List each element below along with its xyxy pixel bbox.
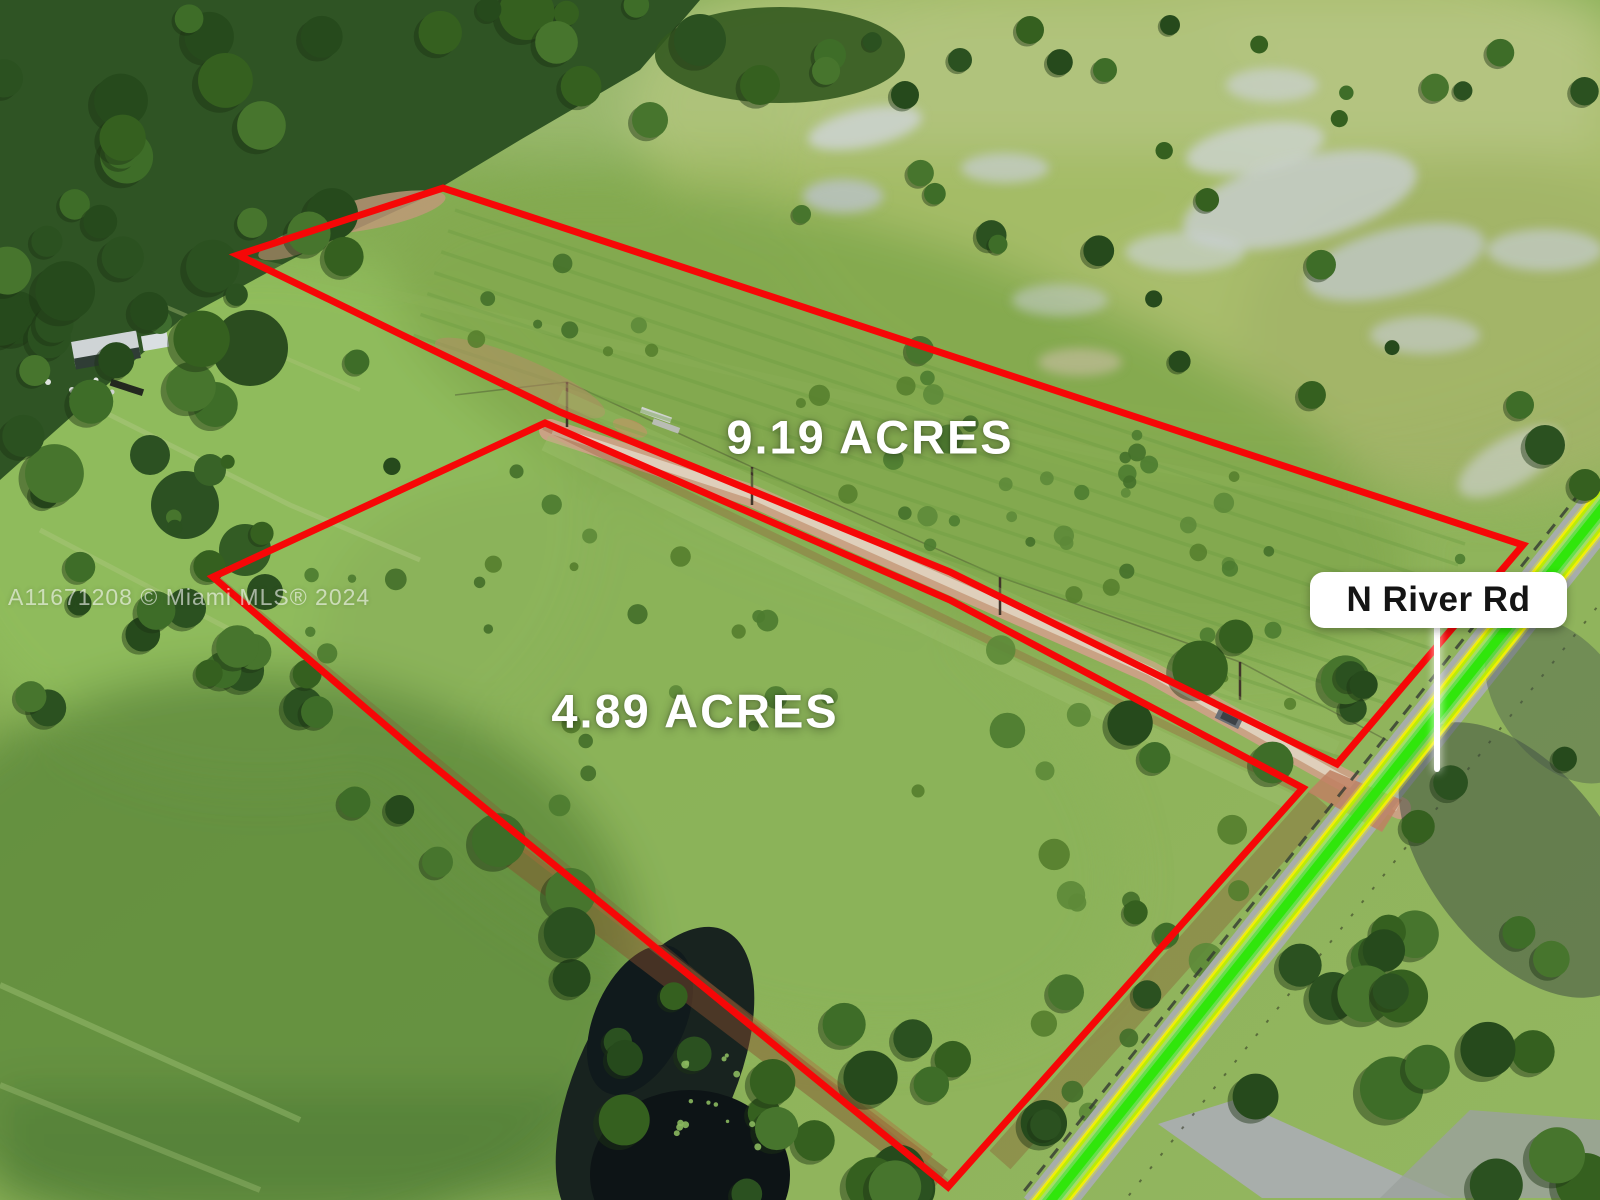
- road-name-label: N River Rd: [1310, 572, 1567, 628]
- road-label-pointer: [1434, 620, 1440, 772]
- acreage-label-4-89: 4.89 ACRES: [551, 684, 838, 739]
- acreage-label-9-19: 9.19 ACRES: [726, 410, 1013, 465]
- aerial-listing-photo: A11671208 © Miami MLS® 2024 9.19 ACRES 4…: [0, 0, 1600, 1200]
- mls-watermark: A11671208 © Miami MLS® 2024: [8, 584, 370, 611]
